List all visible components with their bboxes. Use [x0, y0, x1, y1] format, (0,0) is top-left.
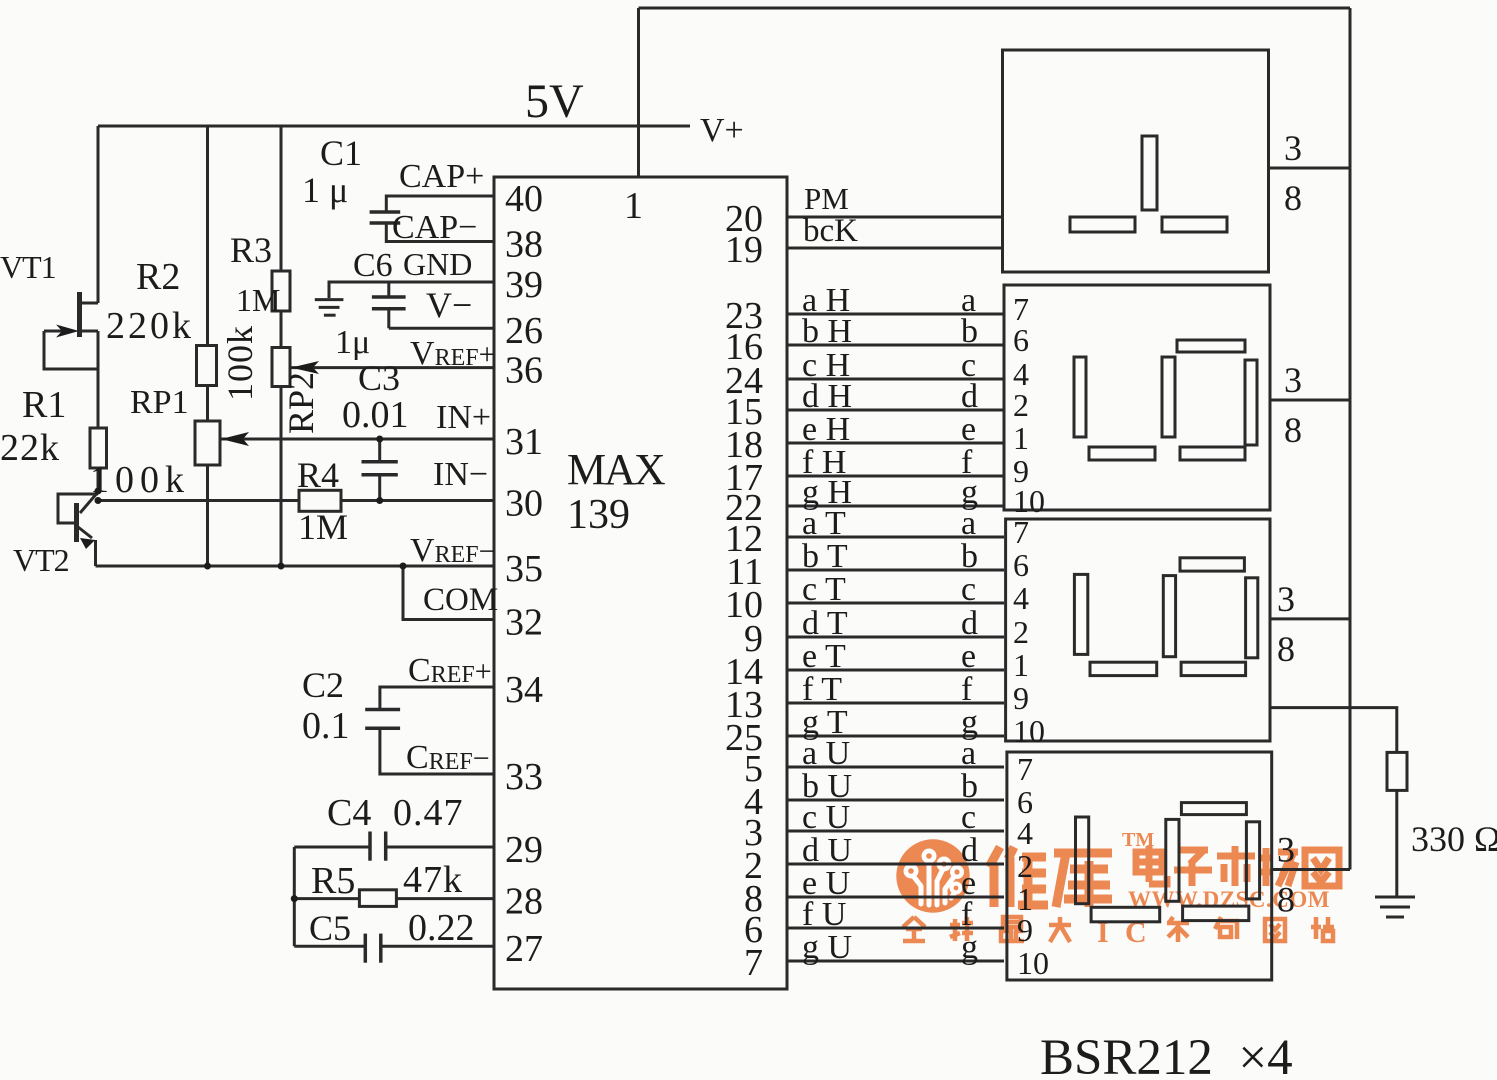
svg-text:4: 4 [1017, 815, 1033, 851]
svg-text:e: e [961, 411, 976, 448]
svg-text:0.47: 0.47 [393, 792, 464, 834]
svg-text:d: d [961, 378, 978, 415]
svg-text:IN+: IN+ [436, 399, 491, 436]
svg-text:e: e [961, 638, 976, 675]
svg-text:330 Ω: 330 Ω [1411, 819, 1497, 859]
svg-text:PM: PM [804, 181, 849, 216]
svg-text:4: 4 [1013, 580, 1029, 616]
svg-text:1M: 1M [236, 282, 280, 318]
svg-text:GND: GND [403, 246, 472, 282]
svg-text:6: 6 [1013, 322, 1029, 358]
svg-text:10: 10 [1013, 713, 1045, 749]
svg-text:C6: C6 [353, 247, 393, 284]
svg-text:9: 9 [1013, 680, 1029, 716]
svg-text:e T: e T [802, 638, 846, 675]
svg-text:34: 34 [505, 669, 543, 711]
svg-text:R3: R3 [230, 230, 272, 270]
svg-text:a: a [961, 505, 976, 542]
svg-text:V+: V+ [700, 112, 744, 149]
svg-text:0.01: 0.01 [342, 394, 409, 436]
svg-text:a: a [961, 735, 976, 772]
svg-text:BSR212 ×4: BSR212 ×4 [1040, 1030, 1293, 1080]
svg-text:f: f [961, 671, 973, 708]
svg-text:31: 31 [505, 421, 543, 463]
svg-text:c: c [961, 571, 976, 608]
svg-text:8: 8 [1284, 410, 1302, 450]
svg-text:1: 1 [1013, 647, 1029, 683]
svg-text:b: b [961, 538, 978, 575]
svg-text:C4: C4 [327, 792, 371, 834]
svg-text:MAX: MAX [567, 445, 665, 494]
svg-text:b: b [961, 313, 978, 350]
svg-text:IN−: IN− [433, 456, 488, 493]
svg-text:9: 9 [1017, 912, 1033, 948]
svg-text:C1: C1 [320, 133, 362, 173]
svg-text:C5: C5 [309, 908, 351, 948]
svg-text:1: 1 [624, 185, 643, 227]
svg-text:1μ: 1μ [335, 324, 370, 361]
svg-text:3: 3 [1277, 579, 1295, 619]
svg-text:RP1: RP1 [130, 384, 189, 421]
svg-text:8: 8 [1284, 178, 1302, 218]
svg-text:100k: 100k [220, 325, 260, 401]
svg-text:g: g [961, 929, 978, 966]
svg-text:a U: a U [802, 735, 850, 772]
svg-text:d T: d T [802, 605, 848, 642]
svg-text:38: 38 [505, 224, 543, 266]
svg-text:a T: a T [802, 505, 846, 542]
svg-text:8: 8 [1277, 880, 1295, 920]
svg-text:R1: R1 [22, 384, 66, 426]
svg-text:f T: f T [802, 671, 842, 708]
svg-text:100k: 100k [90, 459, 190, 501]
svg-text:0.22: 0.22 [408, 907, 475, 949]
svg-text:2: 2 [1013, 387, 1029, 423]
svg-text:bcK: bcK [803, 213, 858, 249]
svg-text:26: 26 [505, 310, 543, 352]
svg-text:d: d [961, 605, 978, 642]
svg-text:COM: COM [423, 582, 498, 618]
svg-text:c: c [961, 799, 976, 836]
svg-text:220k: 220k [106, 305, 194, 347]
svg-text:c T: c T [802, 571, 846, 608]
svg-text:VT2: VT2 [13, 542, 69, 578]
svg-text:3: 3 [1284, 360, 1302, 400]
svg-text:8: 8 [1277, 629, 1295, 669]
svg-text:f: f [961, 896, 973, 933]
svg-text:19: 19 [725, 229, 763, 271]
svg-text:b H: b H [802, 313, 852, 350]
svg-text:7: 7 [744, 942, 763, 984]
svg-text:C2: C2 [302, 665, 344, 705]
svg-text:7: 7 [1013, 514, 1029, 550]
svg-text:R5: R5 [311, 860, 355, 902]
svg-text:33: 33 [505, 756, 543, 798]
svg-text:2: 2 [1017, 848, 1033, 884]
svg-text:5V: 5V [525, 75, 584, 128]
svg-text:32: 32 [505, 602, 543, 644]
svg-text:39: 39 [505, 264, 543, 306]
svg-text:d H: d H [802, 378, 852, 415]
svg-text:d: d [961, 832, 978, 869]
svg-text:CAP+: CAP+ [399, 158, 484, 195]
svg-text:29: 29 [505, 829, 543, 871]
svg-text:g U: g U [802, 929, 852, 966]
svg-text:30: 30 [505, 483, 543, 525]
svg-text:V−: V− [426, 285, 472, 325]
svg-text:CAP−: CAP− [392, 209, 477, 246]
svg-text:2: 2 [1013, 614, 1029, 650]
svg-text:1M: 1M [298, 507, 348, 547]
svg-text:22k: 22k [0, 427, 60, 469]
svg-text:40: 40 [505, 178, 543, 220]
svg-text:35: 35 [505, 548, 543, 590]
svg-text:RP2: RP2 [281, 372, 321, 434]
svg-text:10: 10 [1017, 945, 1049, 981]
svg-text:27: 27 [505, 928, 543, 970]
svg-text:3: 3 [1284, 128, 1302, 168]
svg-text:7: 7 [1017, 751, 1033, 787]
svg-text:b T: b T [802, 538, 848, 575]
svg-text:d U: d U [802, 832, 852, 869]
svg-text:1: 1 [1013, 420, 1029, 456]
svg-text:36: 36 [505, 350, 543, 392]
svg-text:VT1: VT1 [0, 249, 56, 285]
svg-text:139: 139 [567, 492, 630, 538]
svg-text:e H: e H [802, 411, 850, 448]
svg-text:3: 3 [1277, 830, 1295, 870]
svg-text:C3: C3 [358, 358, 400, 398]
svg-text:47k: 47k [403, 859, 463, 901]
svg-text:6: 6 [1013, 547, 1029, 583]
svg-text:c U: c U [802, 799, 850, 836]
svg-text:R2: R2 [136, 256, 180, 298]
svg-text:1 μ: 1 μ [302, 170, 348, 210]
svg-text:f U: f U [802, 896, 846, 933]
svg-text:R4: R4 [297, 455, 339, 495]
svg-text:0.1: 0.1 [302, 705, 350, 747]
svg-text:28: 28 [505, 881, 543, 923]
